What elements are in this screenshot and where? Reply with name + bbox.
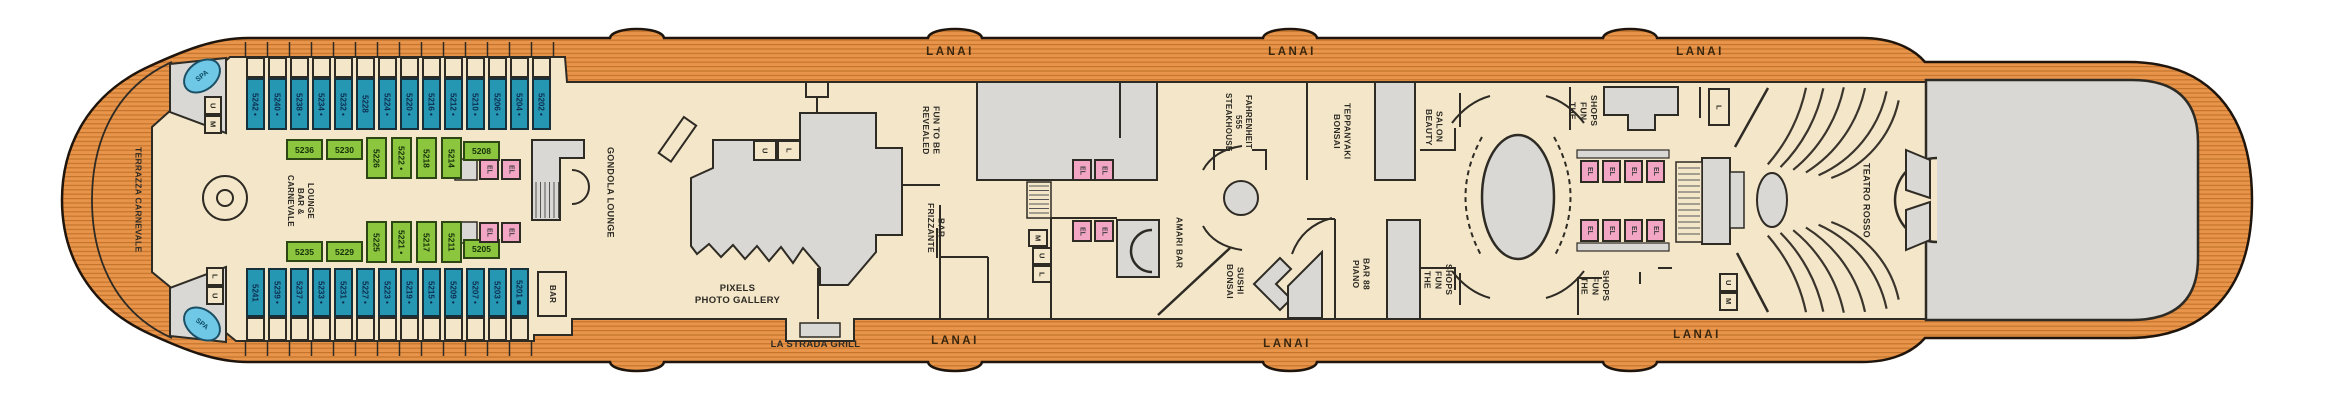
elevator: EL <box>1624 219 1643 242</box>
elevator: EL <box>1646 160 1665 183</box>
stair-cell: M <box>1028 229 1048 247</box>
cabin-5214[interactable]: 5214 <box>441 137 462 179</box>
stair-cell: M <box>204 115 222 134</box>
cabin-5237[interactable]: 5237 • <box>290 268 309 341</box>
cabin-5216[interactable]: 5216 • <box>422 57 441 130</box>
cabin-5215[interactable]: 5215 • <box>422 268 441 341</box>
elevator: EL <box>1072 159 1092 181</box>
stair-cell: L <box>1032 265 1052 283</box>
deck-plan: 5242 •5240 •5238 •5234 •5232 •52285224 •… <box>0 0 2325 400</box>
elevator: EL <box>1072 220 1092 242</box>
cabin-5241[interactable]: 5241 <box>246 268 265 341</box>
stair-cell: U <box>753 140 777 161</box>
cabin-5233[interactable]: 5233 • <box>312 268 331 341</box>
stair-cell: U <box>206 286 224 305</box>
cabin-5229[interactable]: 5229 <box>326 241 363 262</box>
cabin-5236[interactable]: 5236 <box>286 139 323 160</box>
elevator: EL <box>479 222 499 243</box>
cabin-5203[interactable]: 5203 • <box>488 268 507 341</box>
backstage <box>1926 80 2198 320</box>
stair-cell: U <box>204 96 222 115</box>
cabin-5211[interactable]: 5211 <box>441 221 462 263</box>
cabin-5223[interactable]: 5223 • <box>378 268 397 341</box>
cabin-5235[interactable]: 5235 <box>286 241 323 262</box>
cabin-5221[interactable]: 5221 • <box>391 221 412 263</box>
cabin-5220[interactable]: 5220 • <box>400 57 419 130</box>
elevator: EL <box>1580 160 1599 183</box>
elevator: EL <box>501 159 521 180</box>
elevator: EL <box>1094 220 1114 242</box>
elevator: EL <box>1580 219 1599 242</box>
cabin-5225[interactable]: 5225 <box>366 221 387 263</box>
cabin-5224[interactable]: 5224 • <box>378 57 397 130</box>
cabin-5204[interactable]: 5204 • <box>510 57 529 130</box>
cabin-5222[interactable]: 5222 • <box>391 137 412 179</box>
elevator: EL <box>1094 159 1114 181</box>
stair-cell: L <box>777 140 801 161</box>
elevator: EL <box>501 222 521 243</box>
cabin-5238[interactable]: 5238 • <box>290 57 309 130</box>
cabin-5234[interactable]: 5234 • <box>312 57 331 130</box>
cabin-5202[interactable]: 5202 • <box>532 57 551 130</box>
stair-cell: U <box>1032 247 1052 265</box>
cabin-5230[interactable]: 5230 <box>326 139 363 160</box>
cabin-5239[interactable]: 5239 • <box>268 268 287 341</box>
stair-cell: L <box>1708 88 1730 126</box>
stair-cell: M <box>1719 292 1738 311</box>
stair-cell: U <box>1719 273 1738 292</box>
elevator: EL <box>1602 160 1621 183</box>
cabin-5219[interactable]: 5219 • <box>400 268 419 341</box>
cabin-5201[interactable]: 5201 ■ <box>510 268 529 341</box>
cabin-5232[interactable]: 5232 • <box>334 57 353 130</box>
elevator: EL <box>1646 219 1665 242</box>
cabin-5217[interactable]: 5217 <box>416 221 437 263</box>
elevator: EL <box>479 159 499 180</box>
cabin-5231[interactable]: 5231 • <box>334 268 353 341</box>
cabin-5210[interactable]: 5210 • <box>466 57 485 130</box>
cabin-5208[interactable]: 5208 <box>463 141 500 161</box>
bar-room: BAR <box>537 271 567 317</box>
cabin-5228[interactable]: 5228 <box>356 57 375 130</box>
cabin-5227[interactable]: 5227 • <box>356 268 375 341</box>
cabin-5218[interactable]: 5218 <box>416 137 437 179</box>
cabin-5209[interactable]: 5209 • <box>444 268 463 341</box>
cabin-5206[interactable]: 5206 • <box>488 57 507 130</box>
stair-cell: L <box>206 267 224 286</box>
elevator: EL <box>1624 160 1643 183</box>
bar-label: BAR <box>547 285 557 303</box>
cabin-5242[interactable]: 5242 • <box>246 57 265 130</box>
cabin-5207[interactable]: 5207 • <box>466 268 485 341</box>
cabin-5212[interactable]: 5212 • <box>444 57 463 130</box>
elevator: EL <box>1602 219 1621 242</box>
cabin-5240[interactable]: 5240 • <box>268 57 287 130</box>
cabin-5226[interactable]: 5226 <box>366 137 387 179</box>
